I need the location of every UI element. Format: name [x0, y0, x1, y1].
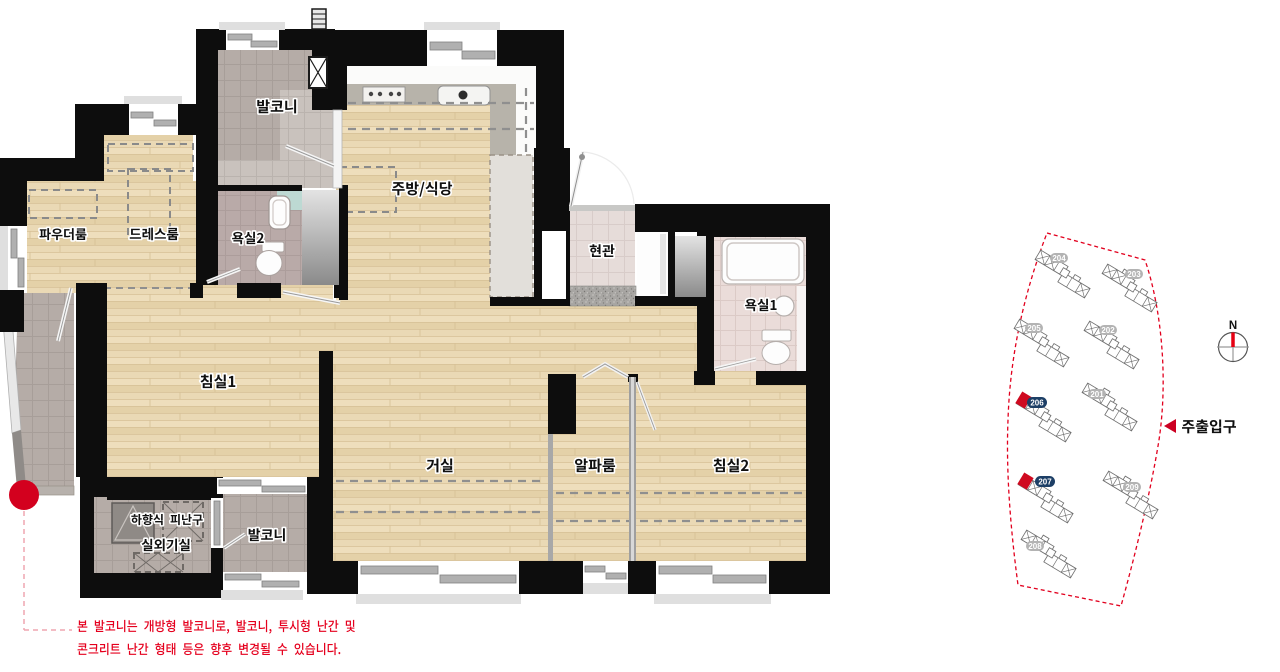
svg-text:N: N [1229, 320, 1237, 332]
svg-text:206: 206 [1030, 399, 1044, 408]
svg-text:204: 204 [1052, 254, 1066, 263]
svg-text:209: 209 [1125, 483, 1139, 492]
svg-text:203: 203 [1127, 270, 1141, 279]
svg-text:201: 201 [1090, 390, 1104, 399]
svg-text:202: 202 [1101, 326, 1115, 335]
svg-text:205: 205 [1027, 324, 1041, 333]
svg-text:207: 207 [1038, 478, 1052, 487]
svg-text:208: 208 [1028, 542, 1042, 551]
